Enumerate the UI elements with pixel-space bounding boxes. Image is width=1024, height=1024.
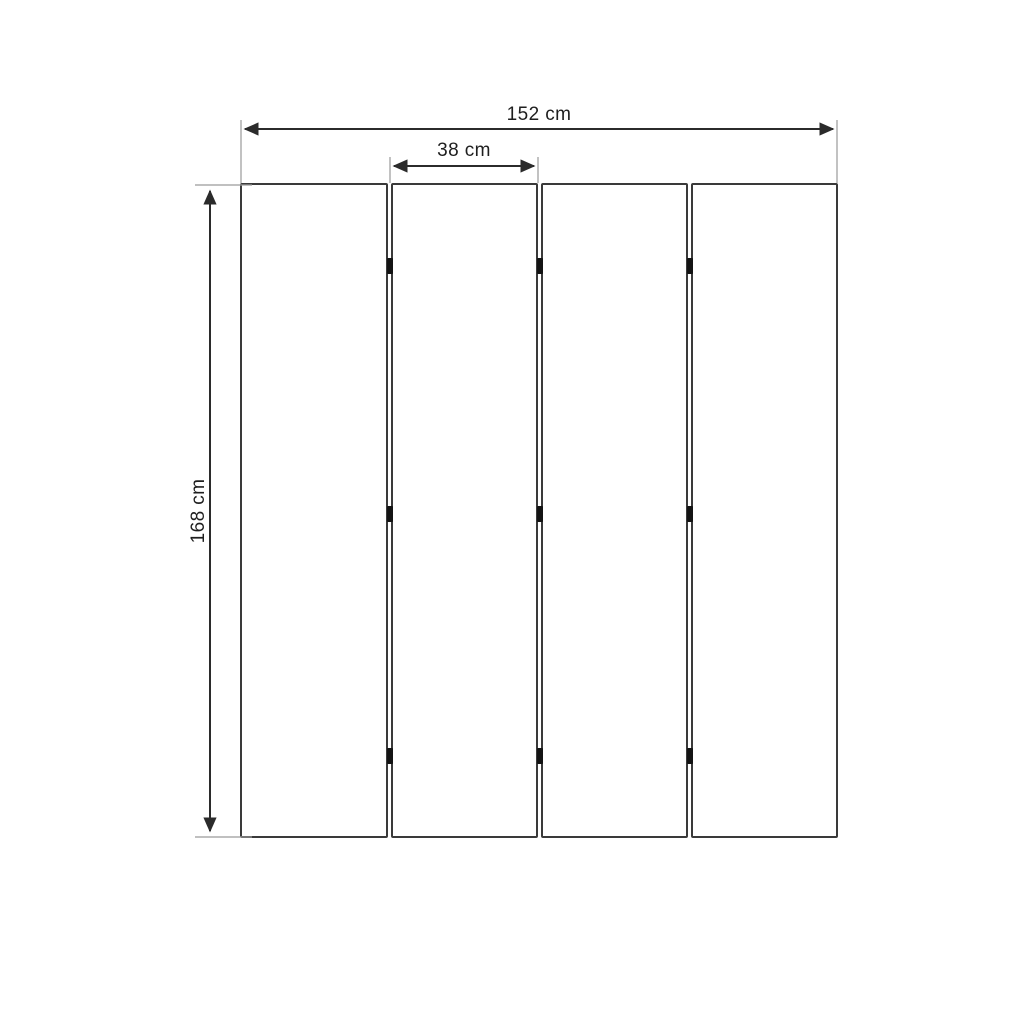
dimension-panel-width: 38 cm (390, 140, 538, 183)
diagram-canvas: 152 cm 38 cm 168 cm (0, 0, 1024, 1024)
hinge-mark (537, 506, 543, 522)
hinge-mark (387, 258, 393, 274)
screen-panel-3 (541, 183, 688, 838)
hinge-mark (687, 506, 693, 522)
hinge-mark (687, 258, 693, 274)
hinge-mark (387, 748, 393, 764)
hinge-mark (537, 258, 543, 274)
hinge-mark (537, 748, 543, 764)
hinge-mark (387, 506, 393, 522)
screen-panel-1 (240, 183, 388, 838)
panel-width-label: 38 cm (437, 140, 491, 161)
screen-panel-2 (391, 183, 538, 838)
total-width-label: 152 cm (507, 104, 572, 125)
screen-panel-4 (691, 183, 838, 838)
hinge-mark (687, 748, 693, 764)
dimension-total-width: 152 cm (241, 104, 837, 183)
height-label: 168 cm (188, 479, 209, 544)
